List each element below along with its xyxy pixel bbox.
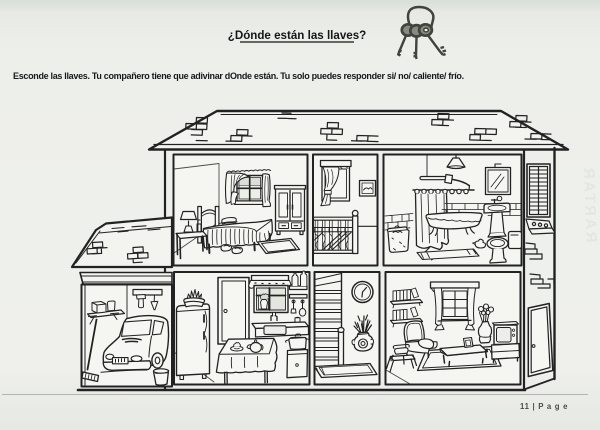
svg-text:ЯАТЯАЯ: ЯАТЯАЯ: [580, 168, 600, 246]
svg-text:Esconde las llaves. Tu compañe: Esconde las llaves. Tu compañero tiene q…: [13, 71, 464, 81]
svg-text:¿Dónde están las llaves?: ¿Dónde están las llaves?: [228, 29, 367, 42]
svg-text:11 | P a g e: 11 | P a g e: [520, 402, 568, 411]
